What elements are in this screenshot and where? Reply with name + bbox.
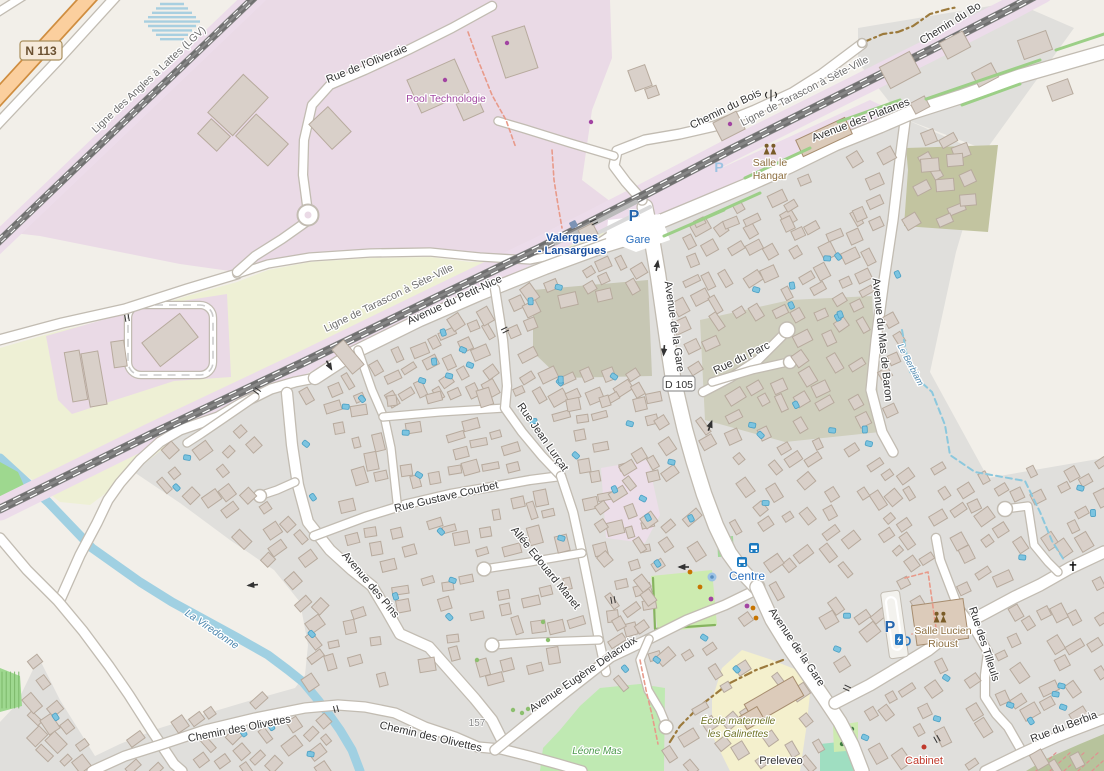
svg-text:N 113: N 113	[25, 44, 57, 58]
svg-text:Gare: Gare	[626, 234, 650, 246]
svg-text:- Lansargues: - Lansargues	[538, 245, 606, 257]
svg-text:✝: ✝	[1068, 559, 1079, 574]
svg-text:Centre: Centre	[729, 569, 765, 583]
svg-text:P: P	[714, 159, 723, 175]
svg-text:P: P	[629, 208, 640, 225]
svg-text:Salle Lucien: Salle Lucien	[914, 625, 971, 637]
svg-text:P: P	[885, 619, 896, 636]
svg-text:Preleveo: Preleveo	[759, 755, 802, 767]
svg-text:Léone Mas: Léone Mas	[572, 746, 621, 757]
svg-text:Valergues: Valergues	[546, 232, 598, 244]
svg-text:157: 157	[469, 718, 486, 729]
svg-text:les Galinettes: les Galinettes	[708, 729, 769, 740]
svg-text:École maternelle: École maternelle	[701, 714, 776, 727]
svg-text:Salle le: Salle le	[753, 157, 788, 169]
svg-text:Rioust: Rioust	[928, 638, 958, 650]
svg-text:Cabinet: Cabinet	[905, 755, 943, 767]
svg-text:Pool Technologie: Pool Technologie	[406, 93, 486, 105]
svg-text:D 105: D 105	[665, 379, 693, 391]
svg-text:Hangar: Hangar	[753, 170, 788, 182]
